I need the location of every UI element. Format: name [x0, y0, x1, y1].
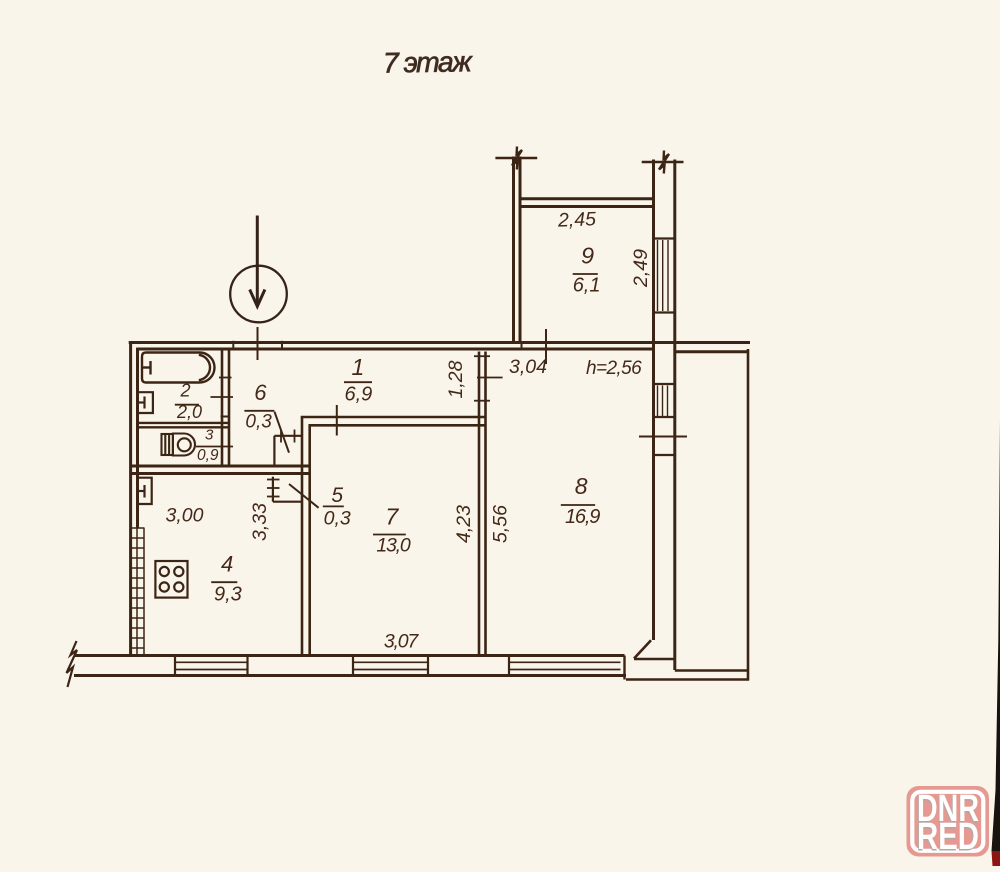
- svg-text:2,49: 2,49: [630, 249, 652, 288]
- svg-text:16,9: 16,9: [565, 506, 600, 528]
- svg-text:7 этаж: 7 этаж: [383, 46, 474, 80]
- svg-text:4,23: 4,23: [453, 505, 475, 543]
- svg-text:2,45: 2,45: [557, 208, 597, 231]
- svg-text:5: 5: [331, 484, 343, 507]
- svg-text:6,9: 6,9: [345, 384, 373, 406]
- svg-text:1: 1: [352, 354, 365, 380]
- svg-text:2,0: 2,0: [176, 402, 202, 422]
- svg-text:h=2,56: h=2,56: [586, 358, 642, 379]
- svg-text:9: 9: [581, 243, 594, 269]
- svg-text:0,3: 0,3: [245, 411, 272, 432]
- svg-text:9,3: 9,3: [214, 584, 242, 606]
- svg-text:1,28: 1,28: [445, 360, 467, 398]
- svg-text:13,0: 13,0: [376, 535, 411, 557]
- svg-text:5,56: 5,56: [490, 505, 512, 543]
- svg-text:0,9: 0,9: [197, 447, 219, 464]
- svg-text:4: 4: [221, 552, 233, 577]
- svg-text:6: 6: [254, 380, 267, 405]
- svg-text:3,04: 3,04: [509, 356, 547, 378]
- svg-text:0,3: 0,3: [324, 508, 351, 530]
- svg-text:7: 7: [385, 503, 399, 529]
- svg-text:RED: RED: [917, 816, 979, 858]
- svg-text:2: 2: [180, 381, 191, 401]
- svg-text:3,07: 3,07: [384, 631, 420, 653]
- svg-text:3,33: 3,33: [249, 503, 271, 541]
- svg-text:3: 3: [205, 427, 214, 444]
- svg-text:3,00: 3,00: [166, 505, 204, 527]
- svg-text:8: 8: [575, 473, 588, 499]
- svg-text:6,1: 6,1: [573, 275, 601, 297]
